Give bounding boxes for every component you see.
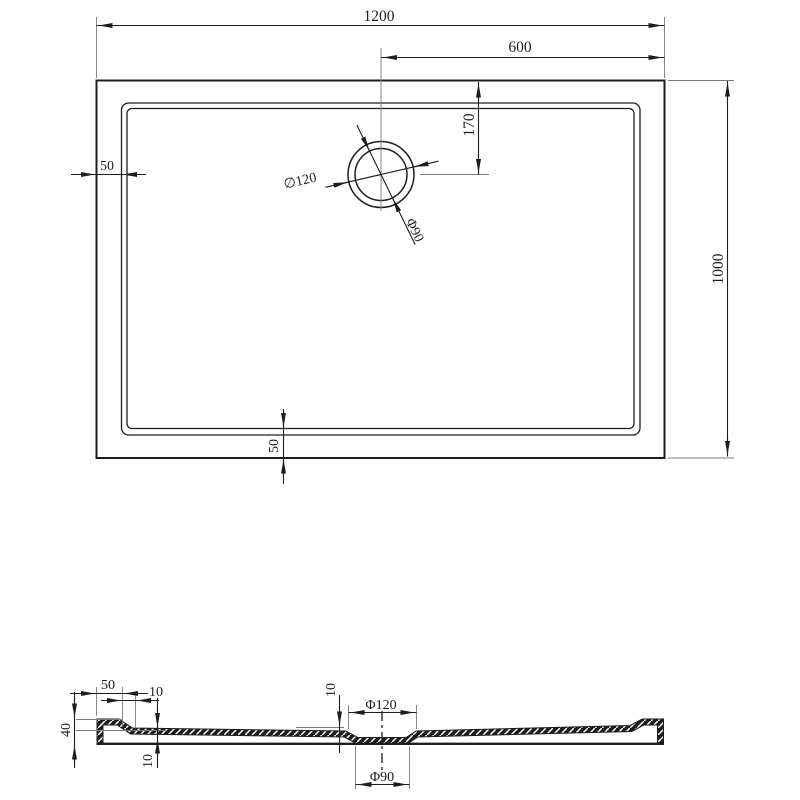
dim-section-recess-outer: Φ120 xyxy=(349,698,417,713)
dim-section-recess-inner: Φ90 xyxy=(356,770,410,785)
dim-rim-bottom-label: 50 xyxy=(267,439,282,453)
dim-section-recess-depth-label: 10 xyxy=(324,683,339,697)
dim-rim-left-label: 50 xyxy=(100,159,114,174)
dim-rim-bottom: 50 xyxy=(267,409,284,484)
dim-rim-left: 50 xyxy=(71,159,146,175)
tray-section-hatch xyxy=(100,722,661,745)
dim-section-rim-width: 50 xyxy=(70,678,148,694)
dim-section-floor-thickness-label: 10 xyxy=(141,754,156,768)
dim-overall-width-label: 1200 xyxy=(364,8,395,25)
dim-drain-from-top-label: 170 xyxy=(461,113,478,137)
shower-tray-drawing: 1200 600 170 50 50 xyxy=(0,0,800,800)
dim-drain-inner-dia-label: Φ90 xyxy=(402,216,426,244)
dim-drain-from-top: 170 xyxy=(461,82,479,175)
tray-outer-outline xyxy=(97,81,665,459)
dim-drain-outer-dia-label: ∅120 xyxy=(282,171,318,193)
dim-drain-to-right-label: 600 xyxy=(508,39,532,56)
dim-section-rim-width-label: 50 xyxy=(101,678,115,693)
dim-overall-depth: 1000 xyxy=(710,81,728,457)
tray-rim-inner-line xyxy=(127,109,634,429)
section-view: 50 10 40 10 10 xyxy=(59,678,664,789)
dim-drain-to-right: 600 xyxy=(381,39,665,58)
dim-section-edge-height-label: 40 xyxy=(59,723,74,737)
dim-section-recess-inner-label: Φ90 xyxy=(370,770,394,785)
dim-section-recess-depth: 10 xyxy=(324,683,340,753)
dim-drain-outer-dia: ∅120 xyxy=(282,161,438,192)
dim-section-recess-outer-label: Φ120 xyxy=(365,698,396,713)
drawing-page: 1200 600 170 50 50 xyxy=(0,0,800,800)
dim-overall-width: 1200 xyxy=(97,8,665,26)
dim-overall-depth-label: 1000 xyxy=(710,253,727,284)
dim-section-step-run-label: 10 xyxy=(149,685,163,700)
dim-section-edge-height: 40 xyxy=(59,692,75,768)
top-view: 1200 600 170 50 50 xyxy=(71,8,734,484)
